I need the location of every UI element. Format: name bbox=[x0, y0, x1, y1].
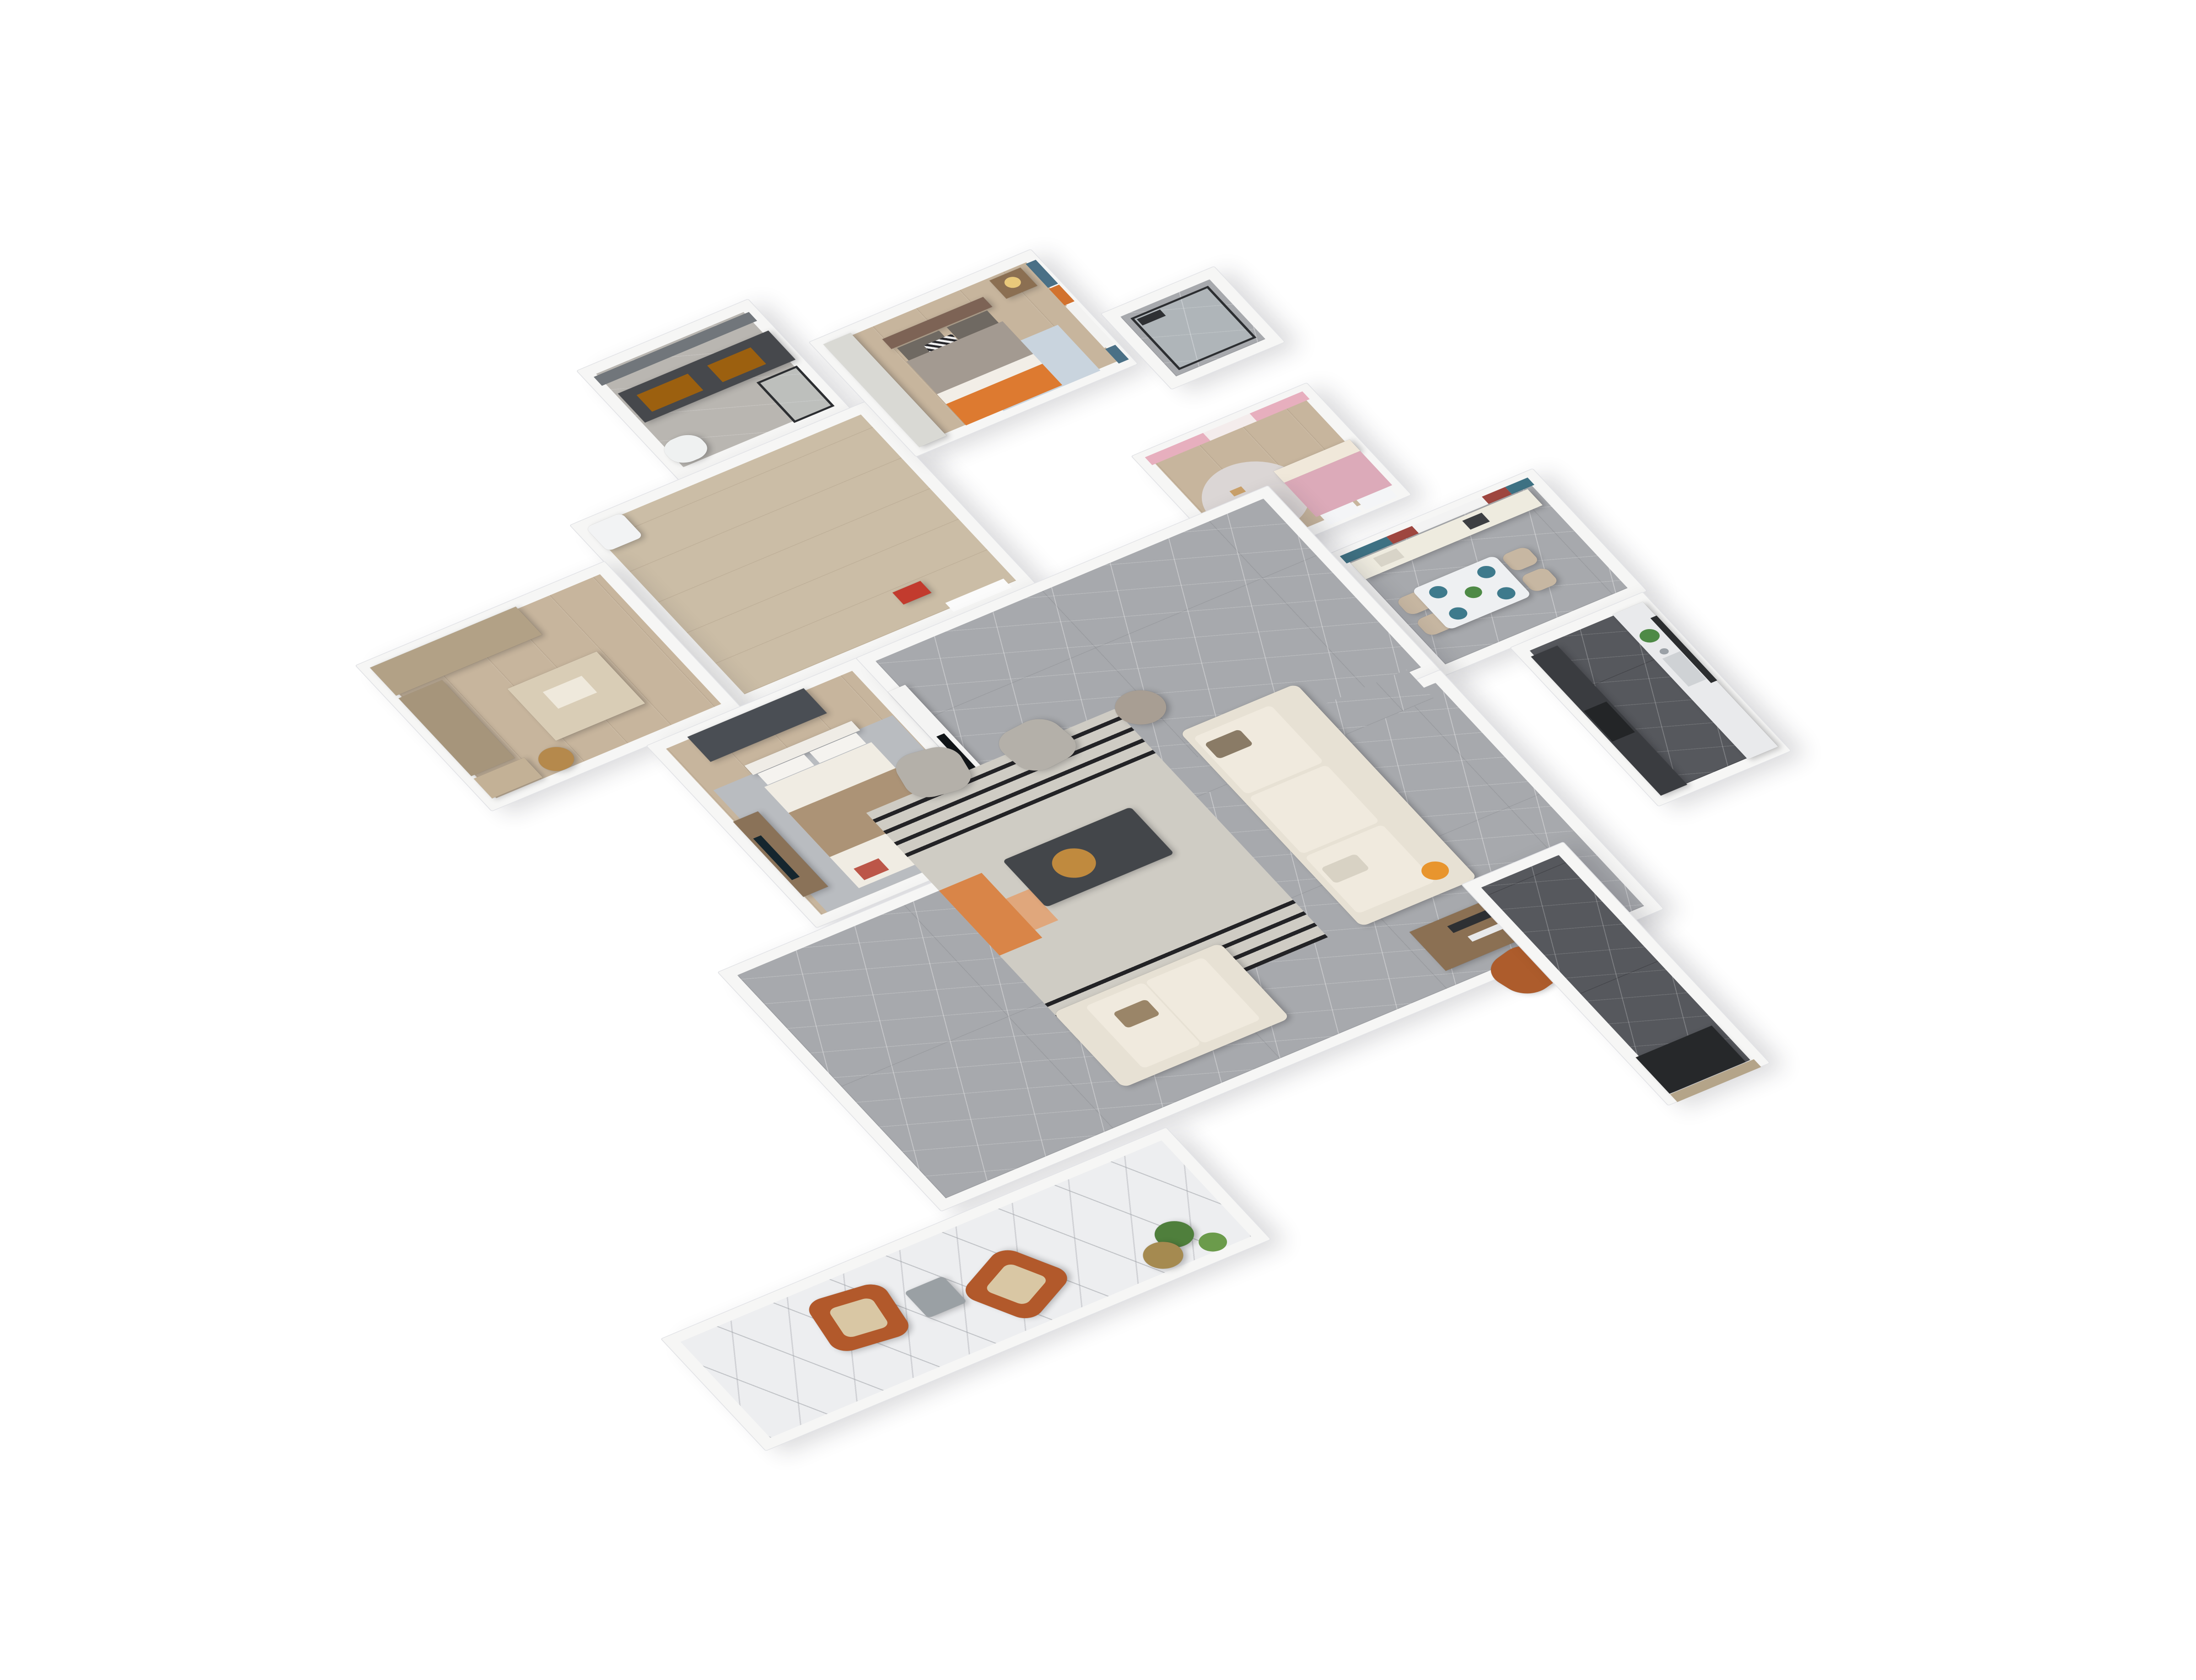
floor-plan bbox=[0, 92, 2093, 1552]
floor-plan-canvas bbox=[0, 0, 2196, 1680]
